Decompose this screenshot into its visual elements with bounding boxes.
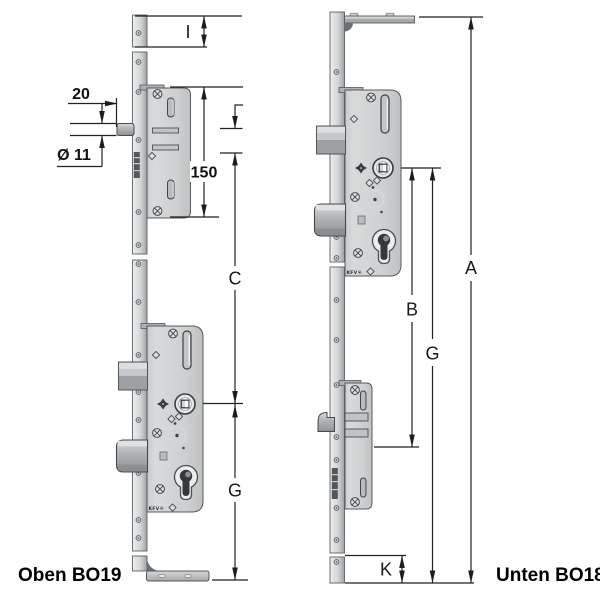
bottom-gearbox: [318, 381, 372, 510]
guide-slot: [361, 391, 367, 410]
dim-label-150: 150: [191, 165, 218, 182]
right-main-lock-case: [315, 88, 402, 277]
dim-label-G-right: G: [425, 344, 439, 364]
dim-20: 20: [68, 86, 118, 127]
dim-label-B: B: [406, 300, 418, 320]
dim-G-right: G: [425, 168, 441, 583]
dim-label-diameter-11: Ø 11: [57, 147, 91, 164]
dim-label-K: K: [380, 560, 392, 580]
top-extension-gearbox: [117, 85, 191, 218]
foot-hole: [184, 575, 192, 578]
latch-ledge: [153, 145, 179, 150]
dim-label-20: 20: [72, 86, 90, 103]
guide-slot: [361, 478, 367, 497]
technical-drawing-multipoint-lock: KFV®: [0, 0, 600, 600]
dim-label-G-left: G: [228, 481, 242, 501]
latch-ledge: [345, 429, 368, 437]
foot-hole: [158, 575, 166, 578]
latch-ledge: [345, 413, 368, 421]
dim-K: K: [345, 556, 406, 584]
dim-diameter-11: Ø 11: [57, 104, 117, 167]
dim-label-C: C: [229, 269, 242, 289]
top-foot-bracket: [345, 13, 415, 31]
rail-segment: [133, 556, 148, 571]
dim-G-left: G: [203, 404, 248, 581]
left-main-lock-case: [117, 324, 204, 513]
dim-C: C: [220, 105, 243, 404]
barcode-sticker: [134, 152, 140, 178]
barcode-sticker: [332, 468, 338, 499]
left-assembly: [117, 15, 210, 581]
dim-label-A: A: [465, 258, 477, 278]
caption-right: Unten BO18: [496, 565, 600, 586]
round-latch-bolt: [117, 124, 134, 136]
gearbox-body: [345, 383, 372, 509]
dim-label-I: I: [185, 22, 190, 42]
dim-I: I: [135, 16, 242, 47]
bottom-foot-bracket: [147, 558, 210, 581]
caption-left: Oben BO19: [18, 565, 121, 586]
right-assembly: [315, 12, 415, 583]
latch-ledge: [153, 128, 179, 133]
